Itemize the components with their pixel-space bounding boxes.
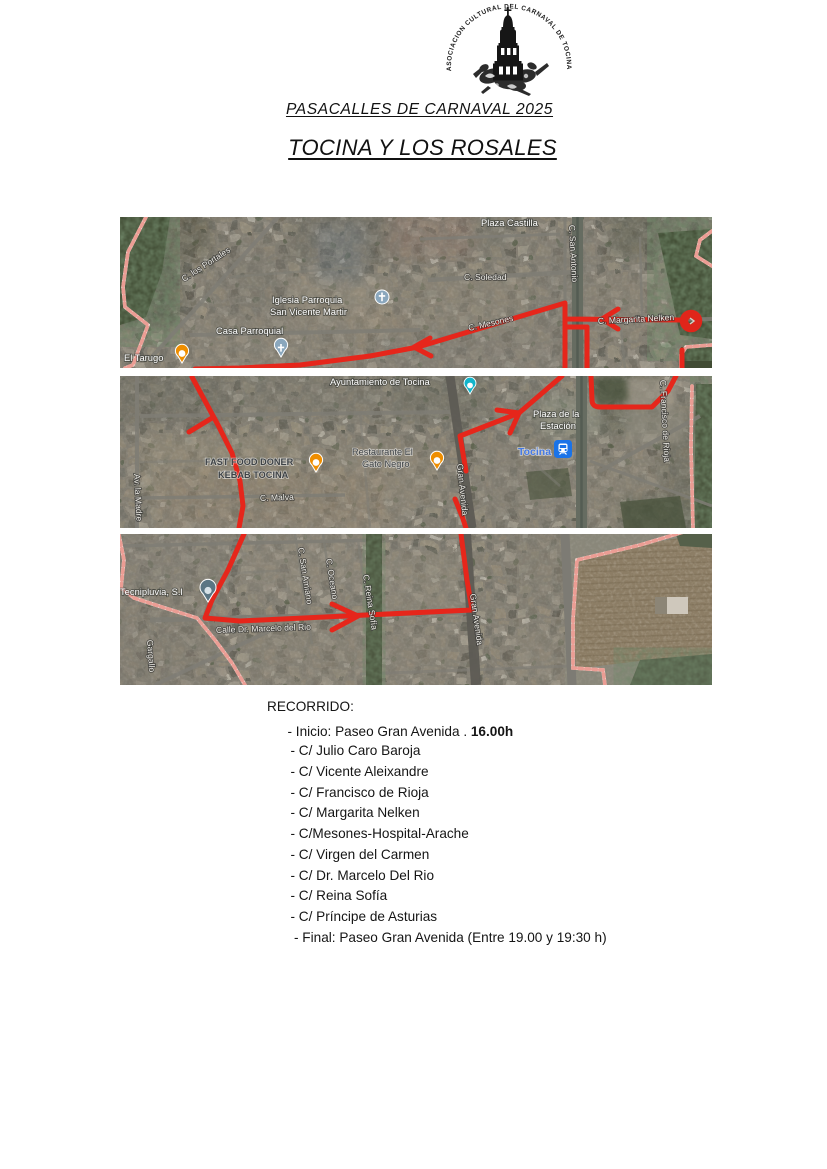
svg-text:FAST FOOD DONER: FAST FOOD DONER (205, 457, 294, 467)
svg-text:Casa Parroquial: Casa Parroquial (216, 325, 283, 336)
svg-text:Tocina: Tocina (518, 446, 551, 458)
svg-text:Iglesia Parroquia: Iglesia Parroquia (272, 294, 343, 305)
svg-text:Plaza de la: Plaza de la (533, 408, 580, 419)
svg-text:Restaurante El: Restaurante El (352, 447, 413, 457)
svg-text:Estación: Estación (540, 420, 576, 431)
svg-text:C. Soledad: C. Soledad (464, 272, 507, 282)
svg-text:Tecnipluvia, S.l: Tecnipluvia, S.l (120, 586, 183, 597)
svg-text:C. Malva: C. Malva (260, 491, 294, 502)
svg-text:Ayuntamiento de Tocina: Ayuntamiento de Tocina (330, 376, 431, 387)
svg-text:Gato Negro: Gato Negro (362, 459, 410, 469)
svg-text:Plaza Castilla: Plaza Castilla (481, 217, 539, 228)
svg-text:San Vicente Martir: San Vicente Martir (270, 306, 347, 317)
svg-text:El Tarugo: El Tarugo (124, 352, 163, 363)
svg-text:KEBAB TOCINA: KEBAB TOCINA (218, 470, 289, 480)
